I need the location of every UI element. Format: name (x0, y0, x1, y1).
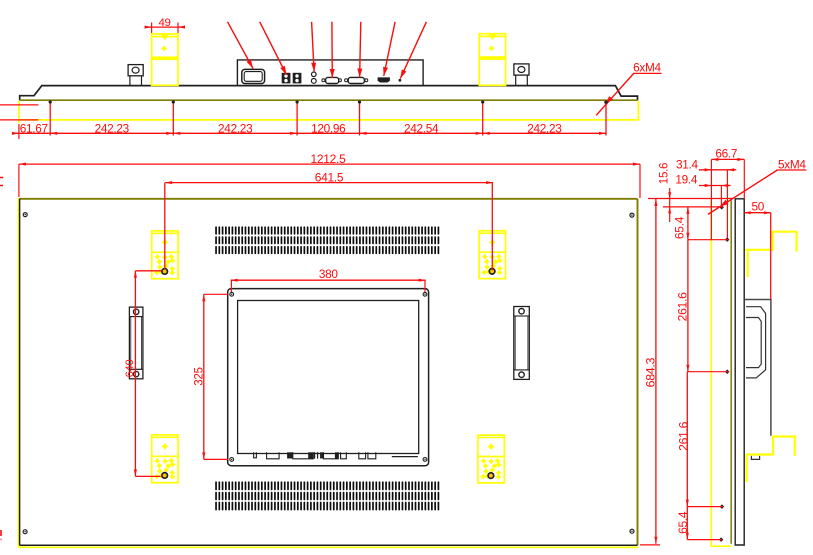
svg-text:61.67: 61.67 (20, 121, 48, 135)
svg-text:242.23: 242.23 (95, 121, 130, 135)
svg-text:65.4: 65.4 (673, 216, 687, 239)
svg-text:120.96: 120.96 (311, 121, 346, 135)
svg-text:49: 49 (158, 17, 170, 29)
svg-text:31.4: 31.4 (676, 158, 698, 172)
svg-text:242.23: 242.23 (527, 121, 562, 135)
svg-text:242.54: 242.54 (404, 121, 439, 135)
svg-text:5xM4: 5xM4 (778, 157, 806, 171)
svg-text:50: 50 (752, 199, 765, 213)
svg-text:66.7: 66.7 (715, 147, 737, 161)
svg-text:261.6: 261.6 (677, 421, 691, 451)
svg-text:6xM4: 6xM4 (633, 61, 661, 75)
svg-text:65.4: 65.4 (676, 511, 690, 534)
svg-text:242.23: 242.23 (218, 121, 253, 135)
svg-text:15.6: 15.6 (657, 163, 670, 184)
svg-text:640: 640 (124, 360, 136, 378)
svg-text:261.6: 261.6 (676, 292, 690, 322)
svg-text:380: 380 (319, 267, 339, 281)
svg-text:325: 325 (193, 367, 206, 385)
svg-text:684.3: 684.3 (644, 357, 658, 387)
svg-text:641.5: 641.5 (315, 171, 344, 185)
svg-text:1212.5: 1212.5 (311, 152, 347, 166)
svg-text:19.4: 19.4 (675, 172, 697, 186)
